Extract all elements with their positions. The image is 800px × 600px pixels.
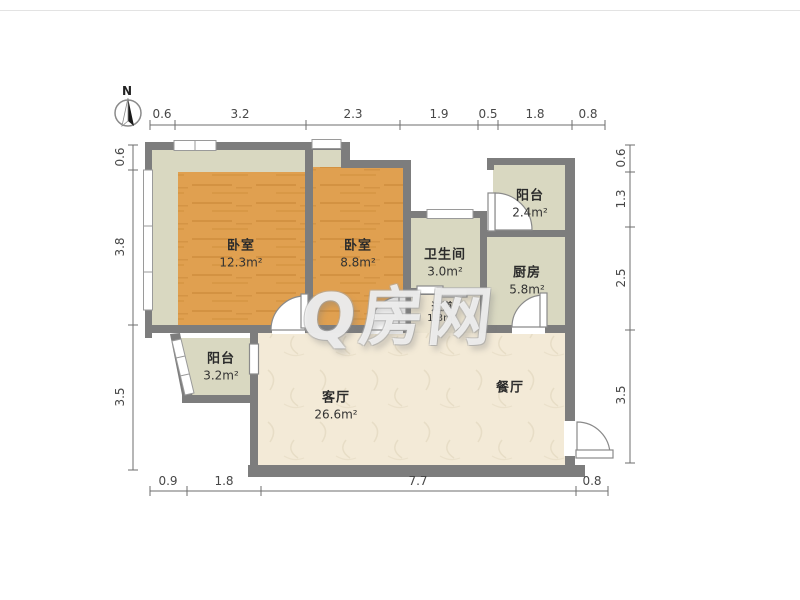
room-label-balcony-top: 阳台 2.4m² bbox=[512, 188, 548, 221]
entrance-door-leaf bbox=[576, 450, 613, 458]
room-area: 8.8m² bbox=[340, 255, 376, 271]
room-label-kitchen: 厨房 5.8m² bbox=[509, 265, 545, 298]
wall-segment bbox=[487, 158, 575, 165]
dim-left-3: 3.5 bbox=[113, 387, 127, 406]
dim-right-4: 3.5 bbox=[614, 385, 628, 404]
compass-north-label: N bbox=[122, 84, 132, 98]
door-leaf bbox=[488, 193, 495, 231]
dim-right-2: 1.3 bbox=[614, 189, 628, 208]
dim-top-7: 0.8 bbox=[578, 107, 597, 121]
sliding-door-panel bbox=[441, 289, 467, 297]
room-name: 厨房 bbox=[509, 265, 545, 282]
room-area: 2.4m² bbox=[512, 205, 548, 221]
room-label-living: 客厅 26.6m² bbox=[314, 390, 357, 423]
dim-left-2: 3.8 bbox=[113, 237, 127, 256]
page-border-line bbox=[0, 10, 800, 11]
dim-right-3: 2.5 bbox=[614, 268, 628, 287]
room-name: 过道 bbox=[427, 301, 457, 313]
door-leaf bbox=[250, 344, 259, 374]
room-label-bedroom-mid: 卧室 8.8m² bbox=[340, 238, 376, 271]
wall-segment bbox=[341, 150, 350, 168]
wall-segment bbox=[145, 325, 272, 333]
dim-top-4: 1.9 bbox=[429, 107, 448, 121]
room-name: 客厅 bbox=[314, 390, 357, 407]
door-leaf bbox=[540, 293, 547, 327]
room-area: 12.3m² bbox=[219, 255, 262, 271]
bedroom-mid-bay-floor bbox=[310, 149, 345, 169]
room-label-bathroom: 卫生间 3.0m² bbox=[424, 247, 466, 280]
room-label-balcony-left: 阳台 3.2m² bbox=[203, 351, 239, 384]
dim-bottom-1: 0.9 bbox=[158, 474, 177, 488]
floor-plan: N 卧室 12.3m² 卧室 8.8m² 卫生间 3.0m² 过道 1.3m² … bbox=[0, 0, 800, 600]
room-label-bedroom-left: 卧室 12.3m² bbox=[219, 238, 262, 271]
dim-top-2: 3.2 bbox=[230, 107, 249, 121]
wall-segment bbox=[565, 158, 575, 421]
room-area: 5.8m² bbox=[509, 282, 545, 298]
wall-segment bbox=[345, 160, 411, 168]
dim-top-5: 0.5 bbox=[478, 107, 497, 121]
room-area: 3.2m² bbox=[203, 368, 239, 384]
room-area: 1.3m² bbox=[427, 313, 457, 325]
dim-left-1: 0.6 bbox=[113, 147, 127, 166]
living-dining-floor bbox=[258, 333, 565, 465]
room-name: 阳台 bbox=[203, 351, 239, 368]
compass-needle-dark bbox=[128, 98, 134, 126]
sliding-door-panel bbox=[417, 286, 443, 294]
room-name: 卧室 bbox=[219, 238, 262, 255]
compass-needle-light bbox=[122, 98, 128, 126]
door-leaf bbox=[399, 294, 406, 328]
dim-bottom-4: 0.8 bbox=[582, 474, 601, 488]
wall-segment bbox=[250, 374, 258, 477]
floor-plan-graphic bbox=[0, 0, 800, 600]
wall-segment bbox=[305, 325, 370, 333]
wall-segment bbox=[487, 158, 494, 170]
dim-top-3: 2.3 bbox=[343, 107, 362, 121]
wall-segment bbox=[480, 325, 512, 333]
wall-segment bbox=[545, 325, 575, 333]
dim-bottom-3: 7.7 bbox=[408, 474, 427, 488]
room-name: 阳台 bbox=[512, 188, 548, 205]
room-label-dining: 餐厅 bbox=[496, 380, 524, 397]
window bbox=[312, 140, 341, 149]
dim-bottom-2: 1.8 bbox=[214, 474, 233, 488]
window bbox=[427, 210, 473, 219]
window bbox=[144, 170, 153, 310]
wall-segment bbox=[487, 230, 575, 237]
room-name: 卫生间 bbox=[424, 247, 466, 264]
room-area: 26.6m² bbox=[314, 407, 357, 423]
room-name: 卧室 bbox=[340, 238, 376, 255]
wall-segment bbox=[480, 211, 487, 333]
wall-segment bbox=[250, 333, 258, 344]
dim-top-1: 0.6 bbox=[152, 107, 171, 121]
wall-segment bbox=[182, 395, 258, 403]
door-leaf bbox=[301, 294, 308, 328]
dim-right-1: 0.6 bbox=[614, 148, 628, 167]
compass bbox=[115, 98, 141, 126]
dim-top-6: 1.8 bbox=[525, 107, 544, 121]
room-label-hallway: 过道 1.3m² bbox=[427, 301, 457, 325]
door-opening bbox=[564, 421, 576, 456]
room-name: 餐厅 bbox=[496, 380, 524, 397]
room-area: 3.0m² bbox=[424, 264, 466, 280]
